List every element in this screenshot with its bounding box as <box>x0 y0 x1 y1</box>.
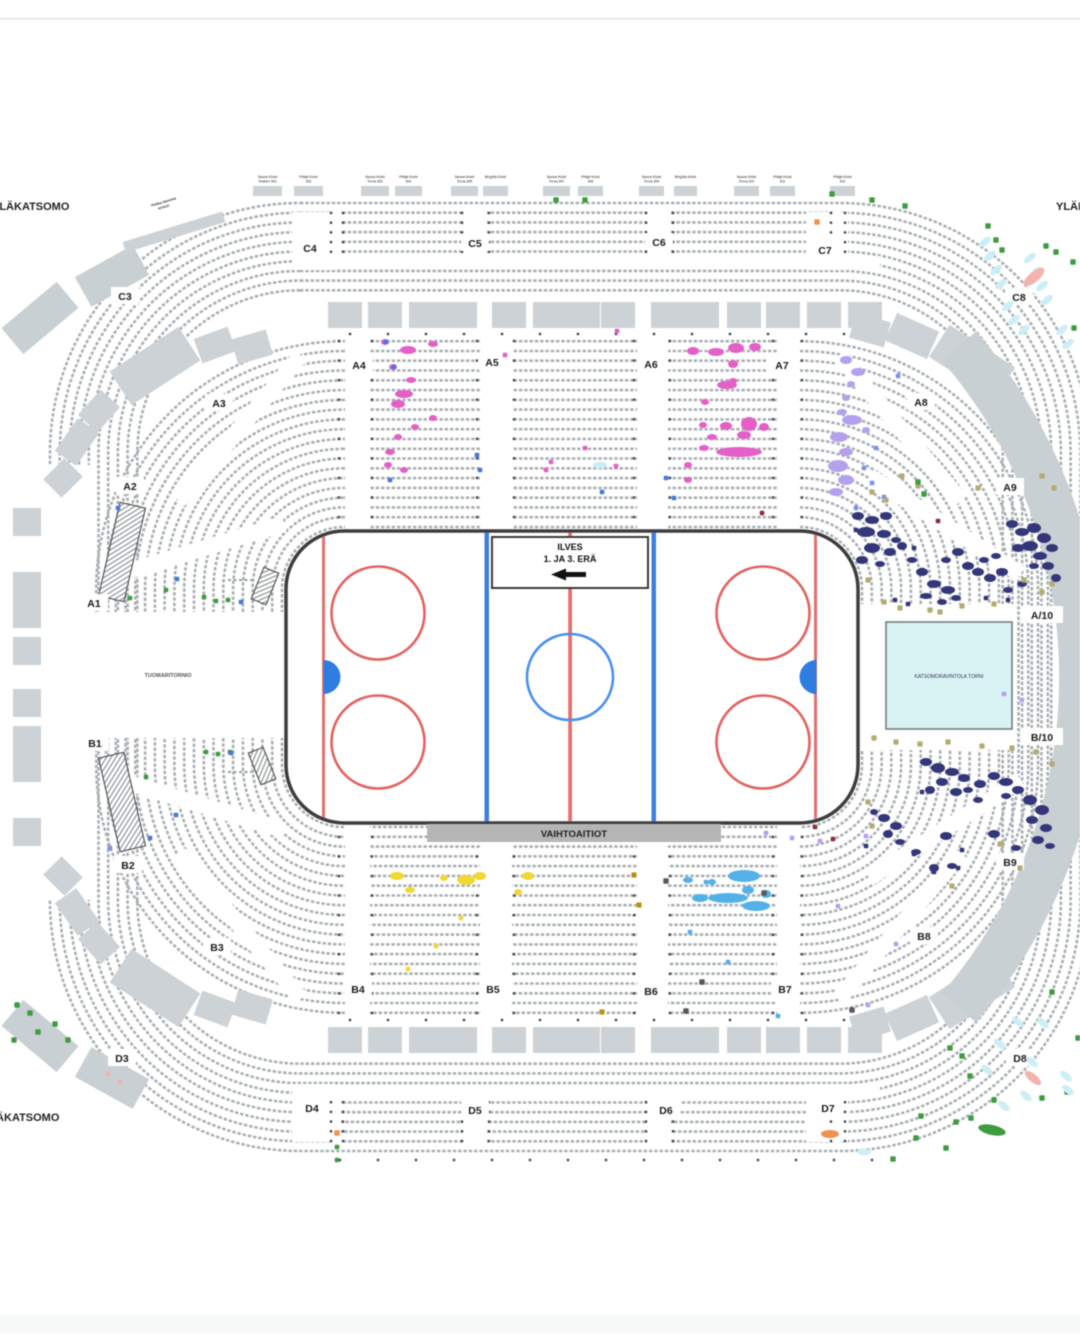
svg-text:Terva 307: Terva 307 <box>549 180 565 184</box>
svg-text:Teatteri 301: Teatteri 301 <box>258 180 277 184</box>
svg-text:D5: D5 <box>468 1105 482 1117</box>
svg-text:A/10: A/10 <box>1031 610 1053 622</box>
svg-text:C4: C4 <box>303 243 317 255</box>
svg-text:304: 304 <box>406 180 412 184</box>
svg-text:A6: A6 <box>644 359 658 371</box>
svg-text:Birgitta Klubi: Birgitta Klubi <box>485 175 506 179</box>
svg-text:Terva 309: Terva 309 <box>644 180 660 184</box>
svg-text:D3: D3 <box>115 1053 129 1065</box>
svg-text:ILVES: ILVES <box>557 542 582 552</box>
svg-text:Pitäjä Klubi: Pitäjä Klubi <box>399 175 418 179</box>
svg-text:B7: B7 <box>778 984 792 996</box>
svg-text:B9: B9 <box>1003 857 1017 869</box>
svg-text:VAIHTOAITIOT: VAIHTOAITIOT <box>541 829 607 840</box>
svg-text:D6: D6 <box>659 1105 673 1117</box>
svg-text:C3: C3 <box>118 291 132 303</box>
svg-text:Sauna Klubi: Sauna Klubi <box>642 175 662 179</box>
svg-text:Sauna Klubi: Sauna Klubi <box>455 175 475 179</box>
svg-text:A8: A8 <box>914 397 928 409</box>
svg-text:Pitäjä Klubi: Pitäjä Klubi <box>773 175 792 179</box>
svg-text:A9: A9 <box>1003 482 1017 494</box>
svg-text:302: 302 <box>306 180 312 184</box>
svg-text:A5: A5 <box>485 357 499 369</box>
svg-text:YLÄKATSOMO: YLÄKATSOMO <box>1056 200 1080 213</box>
svg-text:Sauna Klubi: Sauna Klubi <box>547 175 567 179</box>
svg-text:Pitäjä Klubi: Pitäjä Klubi <box>581 175 600 179</box>
svg-text:Terva 305: Terva 305 <box>457 180 473 184</box>
svg-text:A1: A1 <box>87 598 101 610</box>
svg-text:Birgitta Klubi: Birgitta Klubi <box>675 175 696 179</box>
svg-text:YLÄKATSOMO: YLÄKATSOMO <box>0 200 70 213</box>
svg-text:311: 311 <box>780 180 786 184</box>
svg-text:A2: A2 <box>123 481 137 493</box>
svg-text:KATSOMORAVINTOLA TORNI: KATSOMORAVINTOLA TORNI <box>915 674 984 680</box>
svg-text:A7: A7 <box>775 360 789 372</box>
svg-text:B6: B6 <box>644 986 658 998</box>
svg-text:D8: D8 <box>1013 1053 1027 1065</box>
svg-text:YLÄKATSOMO: YLÄKATSOMO <box>0 1111 60 1124</box>
svg-text:A3: A3 <box>212 398 226 410</box>
svg-text:308: 308 <box>588 180 594 184</box>
svg-text:TUOMARITORNIO: TUOMARITORNIO <box>145 673 193 679</box>
svg-text:B3: B3 <box>210 942 224 954</box>
svg-text:B/10: B/10 <box>1031 732 1053 744</box>
svg-text:C7: C7 <box>818 245 832 257</box>
svg-text:D4: D4 <box>305 1103 319 1115</box>
svg-text:B4: B4 <box>351 984 365 996</box>
svg-text:C5: C5 <box>468 238 482 250</box>
svg-text:B5: B5 <box>486 984 500 996</box>
svg-text:312: 312 <box>840 180 846 184</box>
svg-text:D7: D7 <box>821 1103 835 1115</box>
svg-text:Terva 303: Terva 303 <box>367 180 383 184</box>
svg-text:B1: B1 <box>88 738 102 750</box>
svg-text:Pitäjä Klubi: Pitäjä Klubi <box>833 175 852 179</box>
svg-text:Sauna Klubi: Sauna Klubi <box>258 175 278 179</box>
svg-text:A4: A4 <box>352 360 366 372</box>
svg-text:C8: C8 <box>1012 292 1026 304</box>
svg-text:1. JA 3. ERÄ: 1. JA 3. ERÄ <box>544 554 597 564</box>
svg-text:C6: C6 <box>652 237 666 249</box>
svg-text:B2: B2 <box>121 860 135 872</box>
svg-text:B8: B8 <box>917 931 931 943</box>
svg-text:Terva 310: Terva 310 <box>739 180 755 184</box>
svg-text:Sauna Klubi: Sauna Klubi <box>365 175 385 179</box>
svg-text:Sauna Klubi: Sauna Klubi <box>737 175 757 179</box>
svg-text:Pitäjä Klubi: Pitäjä Klubi <box>299 175 318 179</box>
